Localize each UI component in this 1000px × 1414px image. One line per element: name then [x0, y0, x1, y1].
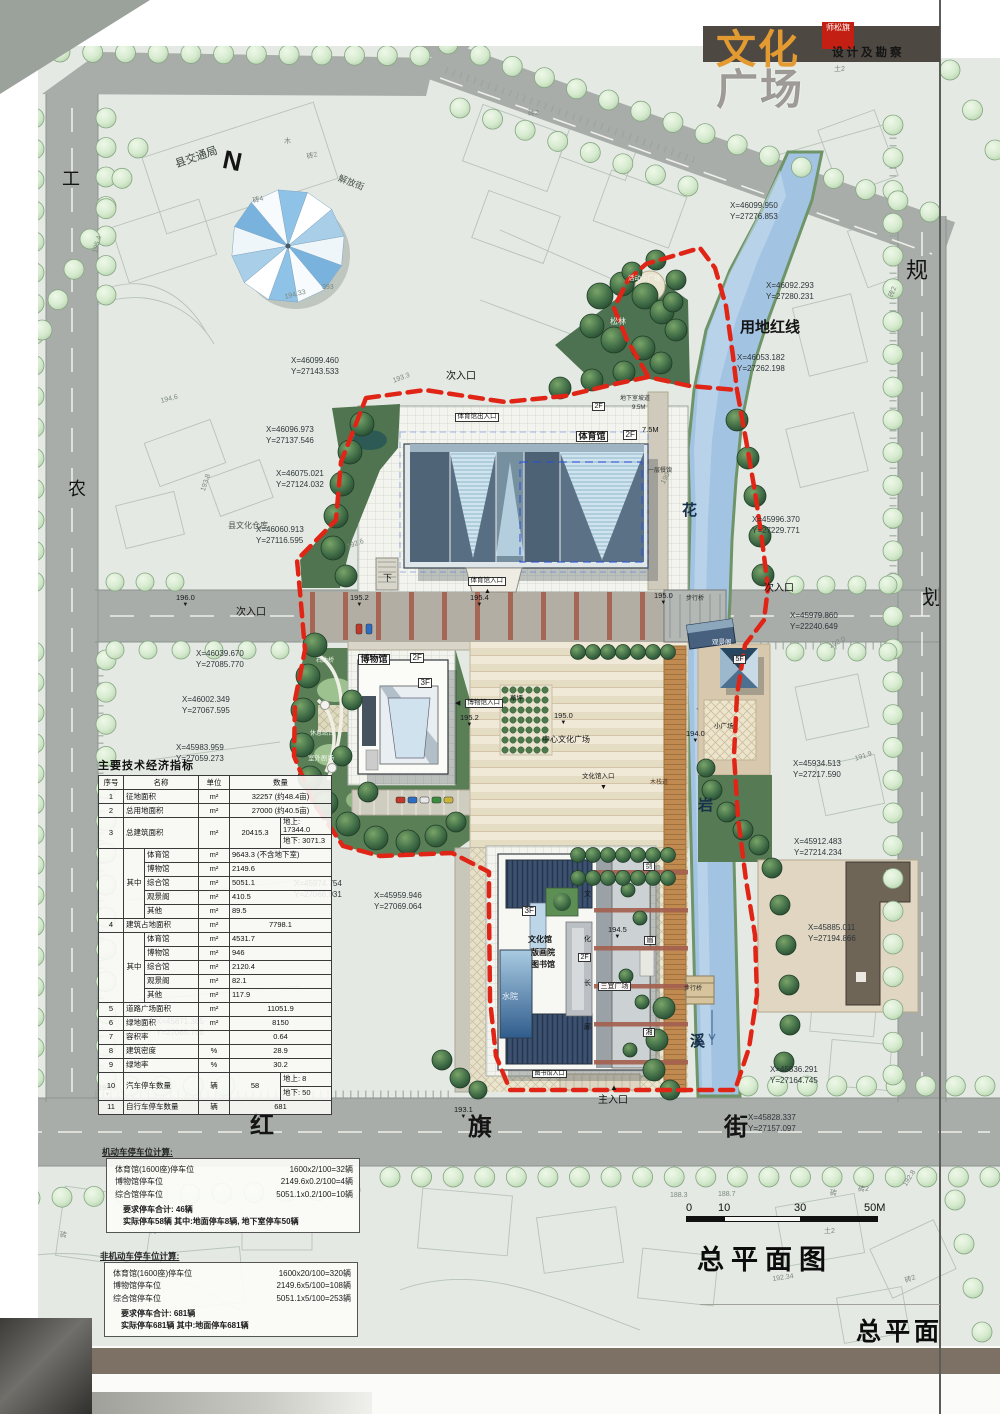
parking-required: 要求停车合计: 46辆	[123, 1204, 353, 1216]
indicator-cell: 征地面积	[124, 790, 199, 804]
sheet-border-line	[939, 0, 941, 1414]
map-label: 体育馆出入口	[455, 413, 499, 422]
indicator-cell: 7798.1	[230, 918, 332, 932]
map-label: ▼	[600, 784, 607, 791]
map-label: 溪	[690, 1034, 705, 1049]
indicator-cell: 容积率	[124, 1030, 199, 1044]
indicator-cell: 7	[99, 1030, 124, 1044]
indicator-cell: 89.5	[230, 904, 332, 918]
indicator-cell: 117.9	[230, 988, 332, 1002]
indicator-cell: 0.64	[230, 1030, 332, 1044]
indicator-cell: 其中	[124, 932, 145, 1002]
map-label: 3F	[522, 906, 536, 916]
technical-indicator-panel: 主要技术经济指标 序号名称单位数量1征地面积m²32257 (约48.4亩)2总…	[98, 757, 332, 1115]
map-label: 文化馆入口	[582, 774, 615, 781]
map-label: 木	[284, 138, 291, 145]
map-label: 规	[906, 260, 928, 282]
map-label: 岩	[698, 798, 713, 813]
indicator-cell: 1	[99, 790, 124, 804]
map-label: 3F	[418, 678, 432, 688]
indicator-cell: %	[199, 1058, 230, 1072]
map-label: 草坪	[510, 696, 523, 703]
map-label: 砖2	[528, 110, 539, 117]
coordinate-label: X=45836.291Y=27164.745	[770, 1064, 818, 1086]
map-label: 次入口	[764, 584, 794, 594]
coordinate-label: X=46002.349Y=27067.595	[182, 694, 230, 716]
coordinate-label: X=46039.670Y=27085.770	[196, 648, 244, 670]
map-label: 砖2	[858, 1186, 869, 1193]
map-label: 次入口	[446, 372, 476, 382]
map-label: 湘	[643, 1028, 655, 1037]
indicator-cell: 建筑占地面积	[124, 918, 199, 932]
scale-30: 30	[794, 1202, 806, 1214]
indicator-cell: 946	[230, 946, 332, 960]
parking-row: 综合馆停车位5051.1x0.2/100=10辆	[115, 1189, 353, 1201]
indicator-cell: 2149.6	[230, 862, 332, 876]
indicator-cell: 10	[99, 1072, 124, 1100]
indicator-cell: 体育馆	[145, 848, 199, 862]
map-label: 文化馆	[528, 936, 552, 944]
indicator-cell: 2	[99, 804, 124, 818]
indicator-cell	[199, 1030, 230, 1044]
coordinate-label: X=46060.913Y=27116.595	[256, 524, 304, 546]
brand-guangchang: 广场	[716, 56, 804, 117]
elevation-marker: 195.2▼	[350, 594, 369, 608]
indicator-cell: 综合馆	[145, 876, 199, 890]
indicator-cell: 观景阁	[145, 974, 199, 988]
indicator-cell: 数量	[230, 776, 332, 790]
elevation-marker: 195.0▼	[654, 592, 673, 606]
map-label: 旗	[468, 1116, 492, 1140]
map-label: 土2	[824, 1228, 835, 1235]
coordinate-label: X=45828.337Y=27157.097	[748, 1112, 796, 1134]
scale-0: 0	[686, 1202, 692, 1214]
coordinate-label: X=45979.860Y=22240.649	[790, 610, 838, 632]
indicator-cell: m²	[199, 1002, 230, 1016]
map-label: 2F	[592, 402, 605, 411]
map-label: 砖	[60, 1232, 67, 1239]
map-label: 红	[250, 1114, 274, 1138]
indicator-cell	[99, 848, 124, 918]
indicator-cell: 681	[230, 1100, 332, 1114]
nonmotor-parking-box: 体育馆(1600座)停车位1600x20/100=320辆博物馆停车位2149.…	[104, 1262, 358, 1337]
motor-parking-box: 体育馆(1600座)停车位1600x2/100=32辆博物馆停车位2149.6x…	[106, 1158, 360, 1233]
map-label: 街	[724, 1116, 748, 1140]
scale-bar-blocks	[686, 1216, 878, 1222]
map-label: 木栈道	[650, 780, 668, 786]
indicator-cell: 9	[99, 1058, 124, 1072]
indicator-cell: 绿地面积	[124, 1016, 199, 1030]
indicator-cell: m²	[199, 988, 230, 1002]
subtitle-design-survey: 设计及勘察	[832, 44, 905, 60]
map-label: 步行桥	[686, 596, 704, 602]
bottom-brown-band	[90, 1348, 1000, 1374]
indicator-cell: m²	[199, 862, 230, 876]
map-label: 石曲桥	[316, 658, 334, 664]
parking-actual: 实际停车58辆 其中:地面停车8辆, 地下室停车50辆	[123, 1216, 353, 1228]
indicator-cell: 辆	[199, 1072, 230, 1100]
map-label: 体育馆	[576, 431, 608, 442]
indicator-cell: 30.2	[230, 1058, 332, 1072]
map-label: 9.5M	[632, 405, 645, 411]
coordinate-label: X=46096.973Y=27137.546	[266, 424, 314, 446]
elevation-marker: 195.4▼	[470, 594, 489, 608]
coordinate-label: X=46099.460Y=27143.533	[291, 355, 339, 377]
map-label: 三宜广场	[598, 982, 631, 991]
scale-bar: 0 10 30 50M	[686, 1202, 878, 1222]
indicator-cell: 地下: 50	[281, 1086, 332, 1100]
elevation-marker: 195.2▼	[460, 714, 479, 728]
map-label: 花	[682, 503, 697, 518]
elevation-marker: 195.0▼	[554, 712, 573, 726]
scale-10: 10	[718, 1202, 730, 1214]
corner-photo	[0, 1318, 92, 1414]
indicator-cell: 博物馆	[145, 946, 199, 960]
coordinate-label: X=46099.950Y=27276.853	[730, 200, 778, 222]
indicator-cell: 汽车停车数量	[124, 1072, 199, 1100]
map-label: 砖	[830, 1190, 837, 1197]
gymnasium-building	[400, 432, 658, 592]
scale-50: 50M	[864, 1202, 885, 1214]
indicator-cell: 建筑密度	[124, 1044, 199, 1058]
map-label: 7.5M	[642, 426, 659, 434]
parking-row: 体育馆(1600座)停车位1600x20/100=320辆	[113, 1268, 351, 1280]
map-label: 松林	[610, 318, 626, 326]
indicator-cell: 博物馆	[145, 862, 199, 876]
indicator-cell: 其他	[145, 988, 199, 1002]
indicator-cell: 序号	[99, 776, 124, 790]
elevation-marker: 193.1▼	[454, 1106, 473, 1120]
coordinate-label: X=46075.021Y=27124.032	[276, 468, 324, 490]
map-label: 图书馆	[531, 961, 555, 969]
scale-numbers: 0 10 30 50M	[686, 1202, 878, 1214]
indicator-cell: 58	[230, 1072, 281, 1100]
title-zone-rule	[700, 1304, 940, 1305]
indicator-cell: 5	[99, 1002, 124, 1016]
coordinate-label: X=45959.946Y=27069.064	[374, 890, 422, 912]
indicator-cell: m²	[199, 790, 230, 804]
map-label: 次入口	[236, 608, 266, 618]
indicator-table: 序号名称单位数量1征地面积m²32257 (约48.4亩)2总用地面积m²270…	[98, 775, 332, 1115]
indicator-cell: 绿地率	[124, 1058, 199, 1072]
elevation-marker: 194.5▼	[608, 926, 627, 940]
parking-actual: 实际停车681辆 其中:地面停车681辆	[121, 1320, 351, 1332]
indicator-cell: 82.1	[230, 974, 332, 988]
map-label: 中心文化广场	[542, 736, 590, 744]
indicator-cell: m²	[199, 946, 230, 960]
indicator-cell: 4	[99, 918, 124, 932]
map-label: 眉	[644, 936, 656, 945]
indicator-cell: m²	[199, 974, 230, 988]
indicator-cell: 名称	[124, 776, 199, 790]
indicator-cell: 观景阁	[145, 890, 199, 904]
map-label: 2F	[410, 653, 424, 663]
motor-parking-heading: 机动车停车位计算:	[102, 1146, 173, 1158]
indicator-cell: 6	[99, 1016, 124, 1030]
indicator-cell: m²	[199, 1016, 230, 1030]
map-label: 土2	[834, 66, 845, 73]
map-label: 活动小广场	[628, 276, 661, 283]
indicator-cell: 其他	[145, 904, 199, 918]
indicator-cell: 单位	[199, 776, 230, 790]
map-label: 长	[584, 980, 591, 987]
indicator-cell: 20415.3	[230, 818, 281, 849]
left-margin	[0, 0, 38, 1346]
map-label: 博物馆入口	[465, 699, 503, 708]
map-label: 393	[322, 284, 334, 291]
map-label: 休息站台	[310, 731, 334, 737]
indicator-cell: m²	[199, 818, 230, 849]
map-label: 工	[62, 170, 80, 188]
plan-title: 总平面图	[697, 1238, 833, 1277]
indicator-cell: 4531.7	[230, 932, 332, 946]
map-label: 主入口	[598, 1096, 628, 1106]
map-label: 用地红线	[740, 320, 800, 335]
indicator-cell	[99, 932, 124, 1002]
map-label: 廊	[584, 1024, 591, 1031]
indicator-cell: 地上: 8	[281, 1072, 332, 1086]
indicator-cell: 8	[99, 1044, 124, 1058]
coordinate-label: X=45885.011Y=27194.866	[808, 922, 856, 944]
map-label: 化	[584, 936, 591, 943]
indicator-cell: 3	[99, 818, 124, 849]
indicator-cell: 其中	[124, 848, 145, 918]
indicator-cell: m²	[199, 932, 230, 946]
parking-required: 要求停车合计: 681辆	[121, 1308, 351, 1320]
indicator-cell: 32257 (约48.4亩)	[230, 790, 332, 804]
indicator-cell: 总用地面积	[124, 804, 199, 818]
indicator-cell: m²	[199, 960, 230, 974]
map-label: 5F	[733, 655, 746, 664]
map-label: 文	[584, 891, 591, 898]
indicator-cell: 410.5	[230, 890, 332, 904]
map-label: 2F	[578, 953, 591, 962]
nonmotor-parking-heading: 非机动车停车位计算:	[100, 1250, 179, 1262]
parking-row: 综合馆停车位5051.1x5/100=253辆	[113, 1293, 351, 1305]
map-label: 步行桥	[684, 986, 702, 992]
map-label: 小广场	[714, 724, 734, 731]
museum-building	[358, 660, 457, 784]
indicator-cell: %	[199, 1044, 230, 1058]
map-label: 观景阁	[712, 640, 732, 647]
indicator-cell: m²	[199, 918, 230, 932]
parking-row: 博物馆停车位2149.6x5/100=108辆	[113, 1280, 351, 1292]
map-label: 188.3	[670, 1192, 688, 1199]
map-label: 农	[68, 480, 86, 498]
indicator-cell: m²	[199, 848, 230, 862]
indicator-cell: m²	[199, 890, 230, 904]
indicator-cell: 地下: 3071.3	[281, 834, 332, 848]
map-label: 博物馆	[358, 654, 390, 665]
indicator-cell: 体育馆	[145, 932, 199, 946]
indicator-cell: 总建筑面积	[124, 818, 199, 849]
map-label: 下	[383, 574, 392, 583]
elevation-marker: 196.0▼	[176, 594, 195, 608]
indicator-cell: 11051.9	[230, 1002, 332, 1016]
map-label: ◀	[455, 700, 460, 707]
indicator-cell: 5051.1	[230, 876, 332, 890]
map-label: 图书馆入口	[532, 1070, 567, 1078]
coordinate-label: X=46053.182Y=27262.198	[737, 352, 785, 374]
map-label: 188.7	[718, 1191, 736, 1198]
map-label: ▲	[610, 1084, 618, 1092]
top-right-margin	[940, 0, 1000, 58]
indicator-cell: 自行车停车数量	[124, 1100, 199, 1114]
site-plan-sheet: 工农规划N县交通局解放街县文化仓库用地红线次入口次入口次入口主入口红旗街花岩溪体…	[0, 0, 1000, 1414]
indicator-cell: 28.9	[230, 1044, 332, 1058]
coordinate-label: X=45934.513Y=27217.590	[793, 758, 841, 780]
parking-row: 体育馆(1600座)停车位1600x2/100=32辆	[115, 1164, 353, 1176]
coordinate-label: X=45996.370Y=27229.771	[752, 514, 800, 536]
map-label: 水院	[502, 993, 518, 1001]
parking-row: 博物馆停车位2149.6x0.2/100=4辆	[115, 1176, 353, 1188]
top-left-corner-wedge	[0, 0, 150, 94]
indicator-cell: 9643.3 (不含地下室)	[230, 848, 332, 862]
indicator-title: 主要技术经济指标	[98, 757, 332, 773]
map-label: 剑	[643, 862, 655, 871]
map-label: 2F	[623, 430, 637, 440]
indicator-cell: m²	[199, 876, 230, 890]
indicator-cell: 道路广场面积	[124, 1002, 199, 1016]
indicator-cell: 地上: 17344.0	[281, 818, 332, 835]
coordinate-label: X=46092.293Y=27280.231	[766, 280, 814, 302]
elevation-marker: 194.0▼	[686, 730, 705, 744]
indicator-cell: 11	[99, 1100, 124, 1114]
indicator-cell: 综合馆	[145, 960, 199, 974]
indicator-cell: 27000 (约40.5亩)	[230, 804, 332, 818]
indicator-cell: m²	[199, 904, 230, 918]
corner-label: 总平面	[856, 1312, 943, 1348]
map-label: 地下室坡道	[620, 396, 650, 402]
indicator-cell: 辆	[199, 1100, 230, 1114]
map-label: 体育馆入口	[468, 577, 506, 586]
coordinate-label: X=45912.483Y=27214.234	[794, 836, 842, 858]
map-label: 版画院	[531, 949, 555, 957]
indicator-cell: 8150	[230, 1016, 332, 1030]
indicator-cell: m²	[199, 804, 230, 818]
indicator-cell: 2120.4	[230, 960, 332, 974]
